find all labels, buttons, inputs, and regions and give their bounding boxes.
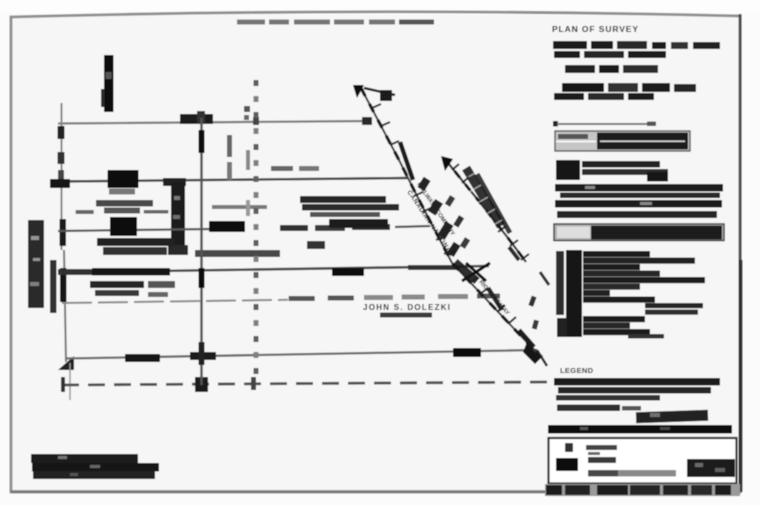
svg-text:LEGEND: LEGEND xyxy=(560,366,594,375)
svg-text:PLAN OF SURVEY: PLAN OF SURVEY xyxy=(552,24,638,34)
svg-text:JOHN S. DOLEZKI: JOHN S. DOLEZKI xyxy=(363,303,450,312)
